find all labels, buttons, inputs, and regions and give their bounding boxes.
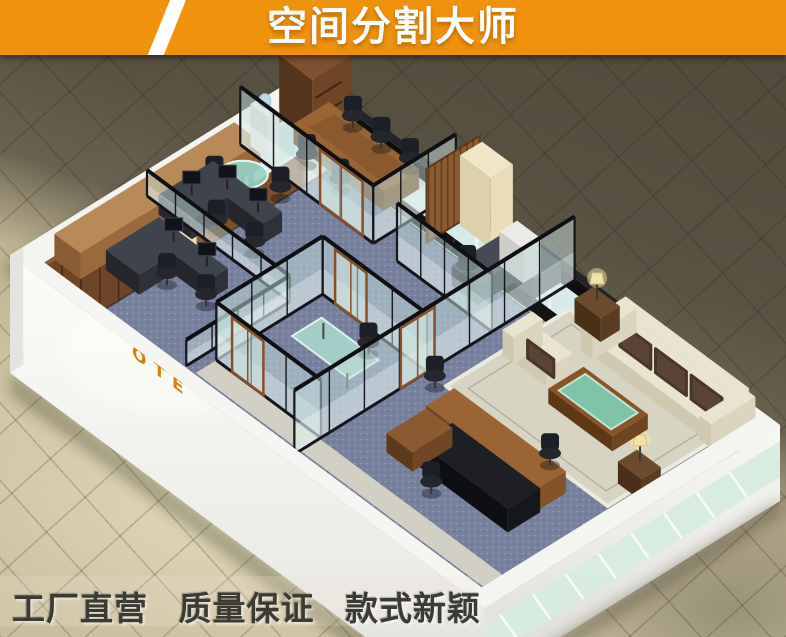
- office-3d-render: OTE: [0, 0, 786, 637]
- slogan-text: 工厂直营: [12, 589, 148, 628]
- footer-slogan: 工厂直营 质量保证 款式新颖: [12, 582, 499, 630]
- page-title: 空间分割大师: [0, 0, 786, 55]
- banner: 空间分割大师: [0, 0, 786, 55]
- product-image-canvas: OTE 空间分割大师 工厂直营 质量保证 款式新颖: [0, 0, 786, 637]
- slogan-text: 款式新颖: [345, 589, 481, 628]
- slogan-text: 质量保证: [179, 589, 315, 628]
